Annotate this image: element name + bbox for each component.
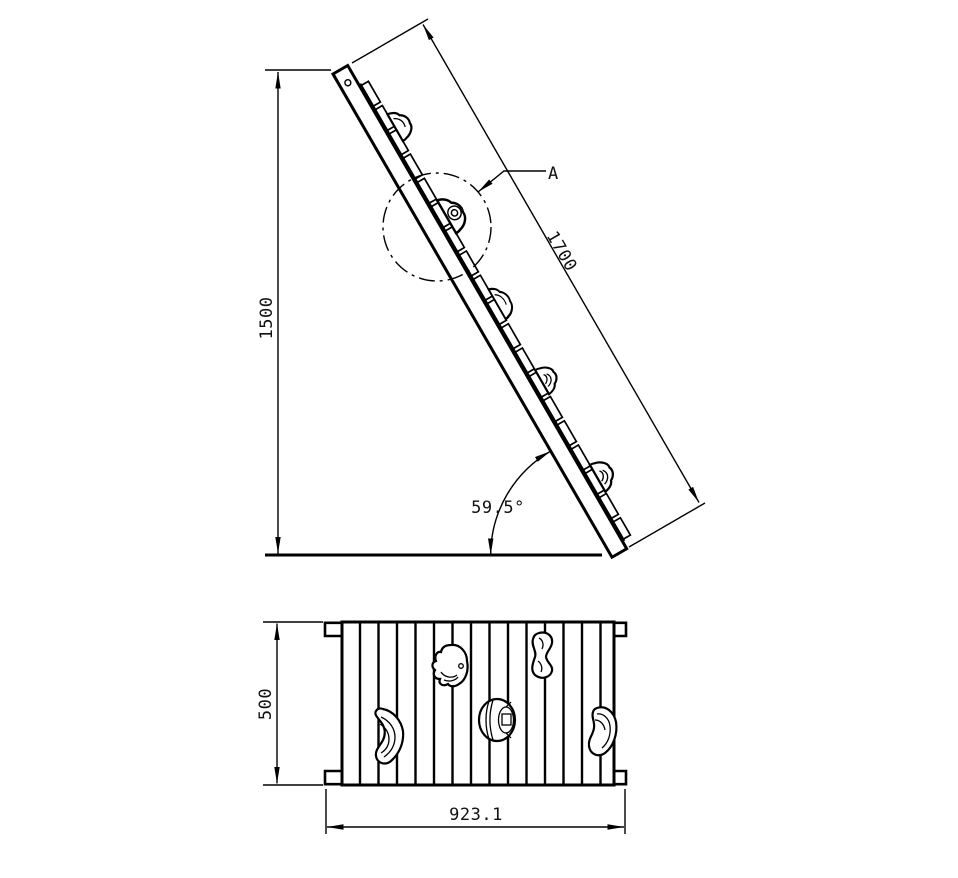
detail-a-label: A (548, 164, 559, 184)
dim-1500-label: 1500 (257, 297, 277, 340)
slat-lines (360, 624, 601, 784)
dimension-angle: 59.5° (471, 451, 551, 555)
climbing-hold-plan-sbean (532, 633, 552, 678)
climbing-ramp-drawing: A 1500 1700 59.5° (0, 0, 958, 878)
corner-tab (614, 771, 626, 784)
corner-tab (325, 771, 342, 784)
extension-line (629, 503, 705, 547)
plan-view: 500 923.1 (256, 622, 626, 834)
corner-tab (614, 623, 626, 636)
dim-923-label: 923.1 (449, 805, 503, 825)
dim-500-label: 500 (256, 688, 276, 720)
angle-label: 59.5° (471, 498, 525, 518)
climbing-hold-plan-teardrop (589, 707, 617, 755)
climbing-hold-plan-scallop (432, 645, 467, 686)
extension-line (352, 19, 428, 63)
dimension-width-923: 923.1 (326, 789, 625, 834)
climbing-holds-plan (375, 633, 616, 764)
dimension-height-1500: 1500 (257, 70, 331, 554)
detail-callout: A (478, 164, 559, 192)
detail-leader-line (478, 171, 546, 192)
dim-1700-label: 1700 (542, 228, 581, 275)
climbing-hold-plan-sphere (479, 699, 515, 741)
side-view: A 1500 1700 59.5° (257, 19, 705, 557)
stringer-plank (333, 66, 627, 558)
ramp-assembly (333, 52, 650, 557)
dimension-depth-500: 500 (256, 622, 323, 785)
corner-tab (325, 623, 342, 636)
technical-drawing-canvas: A 1500 1700 59.5° (0, 0, 958, 878)
